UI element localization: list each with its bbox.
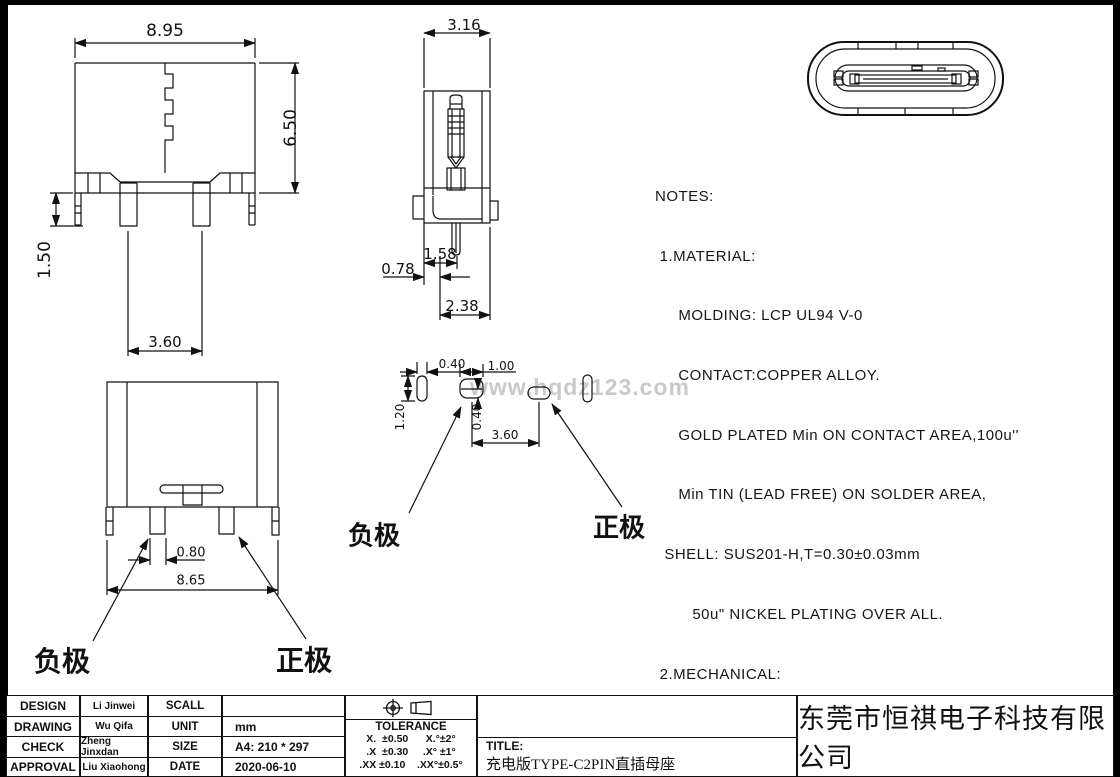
company-name: 东莞市恒祺电子科技有限公司	[797, 695, 1114, 777]
approval-label: APPROVAL	[6, 757, 80, 777]
drawing-name: Wu Qifa	[80, 716, 148, 737]
check-label: CHECK	[6, 736, 80, 758]
notes-line: CONTACT:COPPER ALLOY.	[655, 366, 1019, 386]
title-empty-cell	[478, 696, 796, 738]
back-view-linework	[93, 382, 306, 641]
design-label: DESIGN	[6, 695, 80, 717]
title-label: TITLE:	[486, 739, 788, 753]
tolerance-row: .X ±0.30 .X° ±1°	[346, 746, 476, 759]
front-view-linework	[50, 38, 299, 356]
drawing-label: DRAWING	[6, 716, 80, 737]
notes-line: SHELL: SUS201-H,T=0.30±0.03mm	[655, 545, 1019, 565]
notes-line: Min TIN (LEAD FREE) ON SOLDER AREA,	[655, 485, 1019, 505]
back-negative-label: 负极	[34, 640, 90, 680]
front-dim-pin-length: 1.50	[35, 241, 55, 279]
tolerance-header: TOLERANCE	[346, 721, 476, 733]
side-dim-offset: 0.78	[381, 260, 414, 278]
tolerance-block: TOLERANCE X. ±0.50 X.°±2° .X ±0.30 .X° ±…	[345, 695, 477, 777]
date-value: 2020-06-10	[222, 757, 345, 777]
back-positive-label: 正极	[276, 639, 332, 679]
drawing-title: 充电版TYPE-C2PIN直插母座	[486, 753, 788, 774]
projection-symbol-row	[346, 696, 476, 720]
unit-value: mm	[222, 716, 345, 737]
back-dim-pin-width: 0.80	[177, 546, 206, 561]
check-name: Zheng Jinxdan	[80, 736, 148, 758]
footprint-positive-label: 正极	[593, 508, 645, 545]
scale-label: SCALL	[148, 695, 222, 717]
title-cell: TITLE: 充电版TYPE-C2PIN直插母座	[477, 695, 797, 777]
footprint-dim-pad-height: 1.20	[393, 404, 407, 431]
footprint-dim-pad-gap: 0.40	[439, 357, 466, 371]
footprint-dim-pad-length: 1.00	[488, 359, 515, 373]
design-name: Li Jinwei	[80, 695, 148, 717]
notes-line: MOLDING: LCP UL94 V-0	[655, 306, 1019, 326]
title-area: TITLE: 充电版TYPE-C2PIN直插母座	[478, 738, 796, 775]
front-dim-height: 6.50	[281, 109, 301, 147]
notes-line: 2.MECHANICAL:	[655, 665, 1019, 685]
approval-name: Liu Xiaohong	[80, 757, 148, 777]
side-dim-depth: 2.38	[445, 297, 478, 315]
back-dim-body-width: 8.65	[177, 574, 206, 589]
side-dim-pin-pos: 1.58	[423, 245, 456, 263]
footprint-negative-label: 负极	[348, 516, 400, 553]
drawing-sheet: www.hqdz123.com	[0, 0, 1120, 777]
size-label: SIZE	[148, 736, 222, 758]
scale-value	[222, 695, 345, 717]
notes-line: 50u" NICKEL PLATING OVER ALL.	[655, 605, 1019, 625]
notes-line: 1.MATERIAL:	[655, 247, 1019, 267]
tolerance-row: X. ±0.50 X.°±2°	[346, 733, 476, 746]
front-dim-width: 8.95	[146, 21, 184, 41]
date-label: DATE	[148, 757, 222, 777]
front-dim-pitch: 3.60	[148, 333, 181, 351]
size-value: A4: 210 * 297	[222, 736, 345, 758]
notes-line: GOLD PLATED Min ON CONTACT AREA,100u''	[655, 426, 1019, 446]
unit-label: UNIT	[148, 716, 222, 737]
usbc-face-linework	[808, 42, 1003, 115]
notes-block: NOTES: 1.MATERIAL: MOLDING: LCP UL94 V-0…	[655, 147, 1019, 777]
footprint-dim-pitch: 3.60	[492, 428, 519, 442]
side-dim-width: 3.16	[447, 16, 480, 34]
footprint-dim-pad-thickness: 0.40	[470, 404, 484, 431]
tolerance-row: .XX ±0.10 .XX°±0.5°	[346, 759, 476, 772]
third-angle-projection-icon	[383, 699, 439, 717]
notes-line: NOTES:	[655, 187, 1019, 207]
